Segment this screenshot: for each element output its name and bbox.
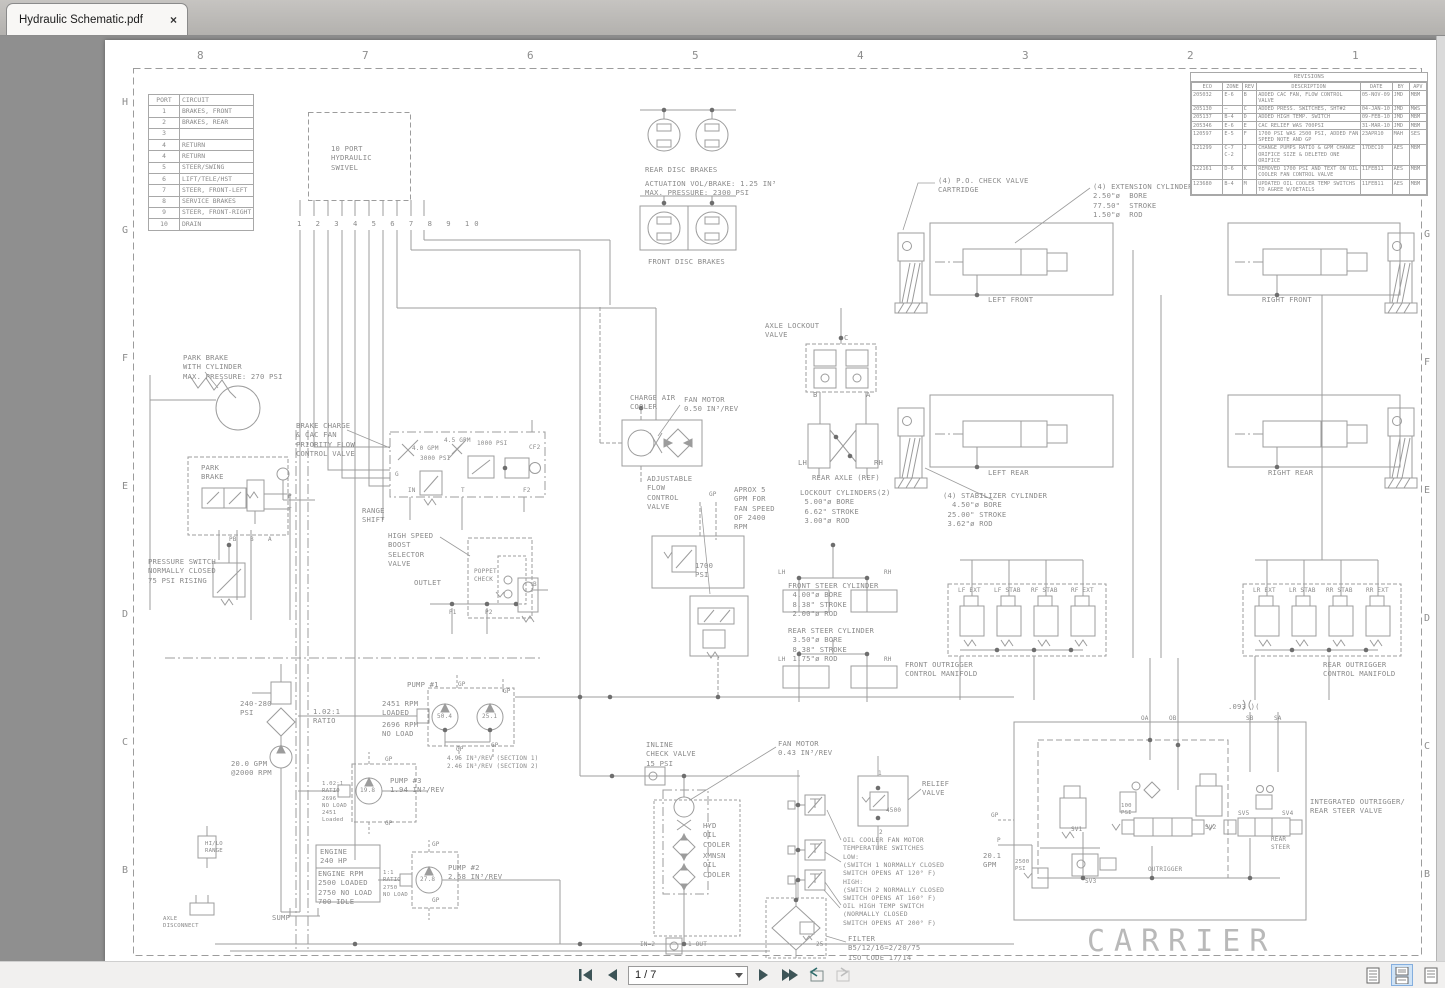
table-cell: 17DEC10 [1360, 144, 1392, 165]
table-cell: 31-MAR-10 [1360, 122, 1392, 130]
return-filter [666, 880, 846, 958]
table-cell: APV [1409, 83, 1426, 91]
table-row: 1BRAKES, FRONT [149, 106, 254, 117]
table-row: 205130—CADDED PRESS. SWITCHES, SHT#204-J… [1192, 105, 1427, 113]
outrigger-manifolds [948, 560, 1401, 700]
table-cell: CAC RELIEF WAS 700PSI [1257, 122, 1361, 130]
table-cell: C [1242, 105, 1257, 113]
table-cell: 11FEB11 [1360, 165, 1392, 179]
table-cell: B-4 [1223, 113, 1242, 121]
single-page-view-button[interactable] [1363, 965, 1383, 985]
continuous-view-button[interactable] [1391, 964, 1413, 986]
table-cell: 1 [149, 106, 180, 117]
table-row: 9STEER, FRONT-RIGHT [149, 207, 254, 218]
table-cell: K [1242, 165, 1257, 179]
steer-cylinders [783, 545, 897, 702]
axle-lockout-valve [806, 330, 878, 478]
stabilizer-cylinders [895, 233, 1417, 488]
table-cell: 205032 [1192, 91, 1223, 105]
table-cell: B-4 [1223, 180, 1242, 194]
table-row: 6LIFT/TELE/HST [149, 174, 254, 185]
table-cell: JMD [1392, 105, 1409, 113]
junction-dots [227, 108, 1369, 947]
table-cell: MBM [1409, 144, 1426, 165]
table-cell: 3 [149, 128, 180, 139]
table-row: 2BRAKES, REAR [149, 117, 254, 128]
page-number-box[interactable] [628, 966, 748, 985]
table-row: 205346E-6ECAC RELIEF WAS 700PSI31-MAR-10… [1192, 122, 1427, 130]
table-row: 120597E-5F1700 PSI WAS 2500 PSI, ADDED F… [1192, 130, 1427, 144]
bottom-toolbar [0, 961, 1445, 988]
table-cell: B [1242, 91, 1257, 105]
priority-flow-control-valve [277, 420, 545, 530]
table-cell: C-7 C-2 [1223, 144, 1242, 165]
table-cell: MBM [1409, 91, 1426, 105]
table-row: 3 [149, 128, 254, 139]
table-cell: 5 [149, 162, 180, 173]
table-row: 4RETURN [149, 140, 254, 151]
table-cell: E-5 [1223, 130, 1242, 144]
table-cell: AES [1392, 180, 1409, 194]
table-cell: 205137 [1192, 113, 1223, 121]
table-cell: 1700 PSI WAS 2500 PSI, ADDED FAN SPEED N… [1257, 130, 1361, 144]
table-cell: E-6 [1223, 91, 1242, 105]
table-cell: 123680 [1192, 180, 1223, 194]
table-cell: DESCRIPTION [1257, 83, 1361, 91]
adjustable-flow-control [652, 500, 748, 697]
table-cell: REV [1242, 83, 1257, 91]
last-page-button[interactable] [780, 966, 800, 984]
table-cell: 4 [149, 151, 180, 162]
table-cell: ECO [1192, 83, 1223, 91]
table-cell: D [1242, 113, 1257, 121]
table-cell: JMD [1392, 91, 1409, 105]
table-cell: 09-FEB-10 [1360, 113, 1392, 121]
table-cell: MBM [1409, 180, 1426, 194]
boost-selector-valve [430, 538, 548, 634]
document-tab[interactable]: Hydraulic Schematic.pdf × [6, 3, 188, 35]
table-cell: 4 [149, 140, 180, 151]
table-cell: 205130 [1192, 105, 1223, 113]
port-circuit-table: PORTCIRCUIT1BRAKES, FRONT2BRAKES, REAR34… [148, 94, 254, 231]
table-cell: BRAKES, REAR [180, 117, 254, 128]
table-cell: RETURN [180, 151, 254, 162]
table-cell: AES [1392, 165, 1409, 179]
table-row: PORTCIRCUIT [149, 95, 254, 106]
table-cell: STEER, FRONT-LEFT [180, 185, 254, 196]
table-cell: MBM [1409, 165, 1426, 179]
table-cell: BY [1392, 83, 1409, 91]
table-row: 5STEER/SWING [149, 162, 254, 173]
revisions-title: REVISIONS [1191, 73, 1427, 82]
park-brake-assembly [150, 375, 290, 620]
table-cell: RETURN [180, 140, 254, 151]
table-cell: AES [1392, 144, 1409, 165]
table-cell: 8 [149, 196, 180, 207]
table-cell: E [1242, 122, 1257, 130]
table-cell: LIFT/TELE/HST [180, 174, 254, 185]
table-cell: 121299 [1192, 144, 1223, 165]
document-tab-title: Hydraulic Schematic.pdf [19, 14, 168, 26]
table-row: 122161D-6KREMOVED 1700 PSI AND TEXT ON O… [1192, 165, 1427, 179]
table-cell: M [1242, 180, 1257, 194]
table-cell: CIRCUIT [180, 95, 254, 106]
table-cell: 11FEB11 [1360, 180, 1392, 194]
table-cell: D-6 [1223, 165, 1242, 179]
main-relief-valve [858, 756, 921, 850]
table-cell: E-6 [1223, 122, 1242, 130]
charge-air-cooler [600, 305, 702, 482]
table-cell: JMD [1392, 113, 1409, 121]
table-cell: DATE [1360, 83, 1392, 91]
next-view-button[interactable] [832, 966, 852, 984]
table-row: 121299C-7 C-2JCHANGE PUMPS RATIO & GPM C… [1192, 144, 1427, 165]
table-cell: JMD [1392, 122, 1409, 130]
first-page-button[interactable] [576, 966, 596, 984]
hydraulic-swivel [309, 113, 411, 201]
table-cell: 2 [149, 117, 180, 128]
previous-view-button[interactable] [806, 966, 826, 984]
table-row: 205137B-4DADDED HIGH TEMP. SWITCH09-FEB-… [1192, 113, 1427, 121]
table-cell: 9 [149, 207, 180, 218]
table-cell: 6 [149, 174, 180, 185]
table-cell: 04-JAN-10 [1360, 105, 1392, 113]
facing-view-button[interactable] [1421, 965, 1441, 985]
table-row: 4RETURN [149, 151, 254, 162]
page-layout-controls [1363, 964, 1441, 986]
table-cell: SES [1409, 130, 1426, 144]
table-cell: MBM [1409, 113, 1426, 121]
next-page-button[interactable] [754, 966, 774, 984]
table-cell: ADDED HIGH TEMP. SWITCH [1257, 113, 1361, 121]
table-cell: 122161 [1192, 165, 1223, 179]
table-cell: ADDED CAC FAN, FLOW CONTROL VALVE [1257, 91, 1361, 105]
table-cell: CHANGE PUMPS RATIO & GPM CHANGE ORIFICE … [1257, 144, 1361, 165]
table-cell: 205346 [1192, 122, 1223, 130]
table-row: 123680B-4MUPDATED OIL COOLER TEMP SWITCH… [1192, 180, 1427, 194]
previous-page-button[interactable] [602, 966, 622, 984]
page-navigation [576, 962, 852, 988]
table-cell: 120597 [1192, 130, 1223, 144]
table-row: ECOZONEREVDESCRIPTIONDATEBYAPV [1192, 83, 1427, 91]
table-row: 7STEER, FRONT-LEFT [149, 185, 254, 196]
table-cell: STEER/SWING [180, 162, 254, 173]
table-cell: PORT [149, 95, 180, 106]
table-cell: SERVICE BRAKES [180, 196, 254, 207]
table-cell: 10 [149, 219, 180, 230]
table-row: 205032E-6BADDED CAC FAN, FLOW CONTROL VA… [1192, 91, 1427, 105]
tab-bar: Hydraulic Schematic.pdf × [0, 0, 1445, 36]
page-number-input[interactable] [629, 969, 725, 981]
table-cell: ADDED PRESS. SWITCHES, SHT#2 [1257, 105, 1361, 113]
table-cell: — [1223, 105, 1242, 113]
table-cell: DRAIN [180, 219, 254, 230]
oil-cooler-circuit [580, 767, 800, 944]
table-cell: BRAKES, FRONT [180, 106, 254, 117]
integrated-outrigger-valve [998, 658, 1306, 920]
table-cell: 7 [149, 185, 180, 196]
table-cell: J [1242, 144, 1257, 165]
table-cell: MBM [1409, 122, 1426, 130]
table-cell: UPDATED OIL COOLER TEMP SWITCHS TO AGREE… [1257, 180, 1361, 194]
table-cell: 05-NOV-09 [1360, 91, 1392, 105]
pump-group [298, 674, 560, 944]
table-cell: 23APR10 [1360, 130, 1392, 144]
table-cell: MAH [1392, 130, 1409, 144]
extension-cylinders [930, 223, 1400, 658]
table-row: 10DRAIN [149, 219, 254, 230]
table-cell: REMOVED 1700 PSI AND TEXT ON OIL COOLER … [1257, 165, 1361, 179]
chevron-down-icon[interactable] [735, 973, 743, 978]
table-cell: ZONE [1223, 83, 1242, 91]
revisions-table: REVISIONS ECOZONEREVDESCRIPTIONDATEBYAPV… [1190, 72, 1428, 196]
close-icon[interactable]: × [168, 13, 179, 27]
table-cell: STEER, FRONT-RIGHT [180, 207, 254, 218]
table-cell: MWS [1409, 105, 1426, 113]
table-cell: F [1242, 130, 1257, 144]
table-cell [180, 128, 254, 139]
table-row: 8SERVICE BRAKES [149, 196, 254, 207]
